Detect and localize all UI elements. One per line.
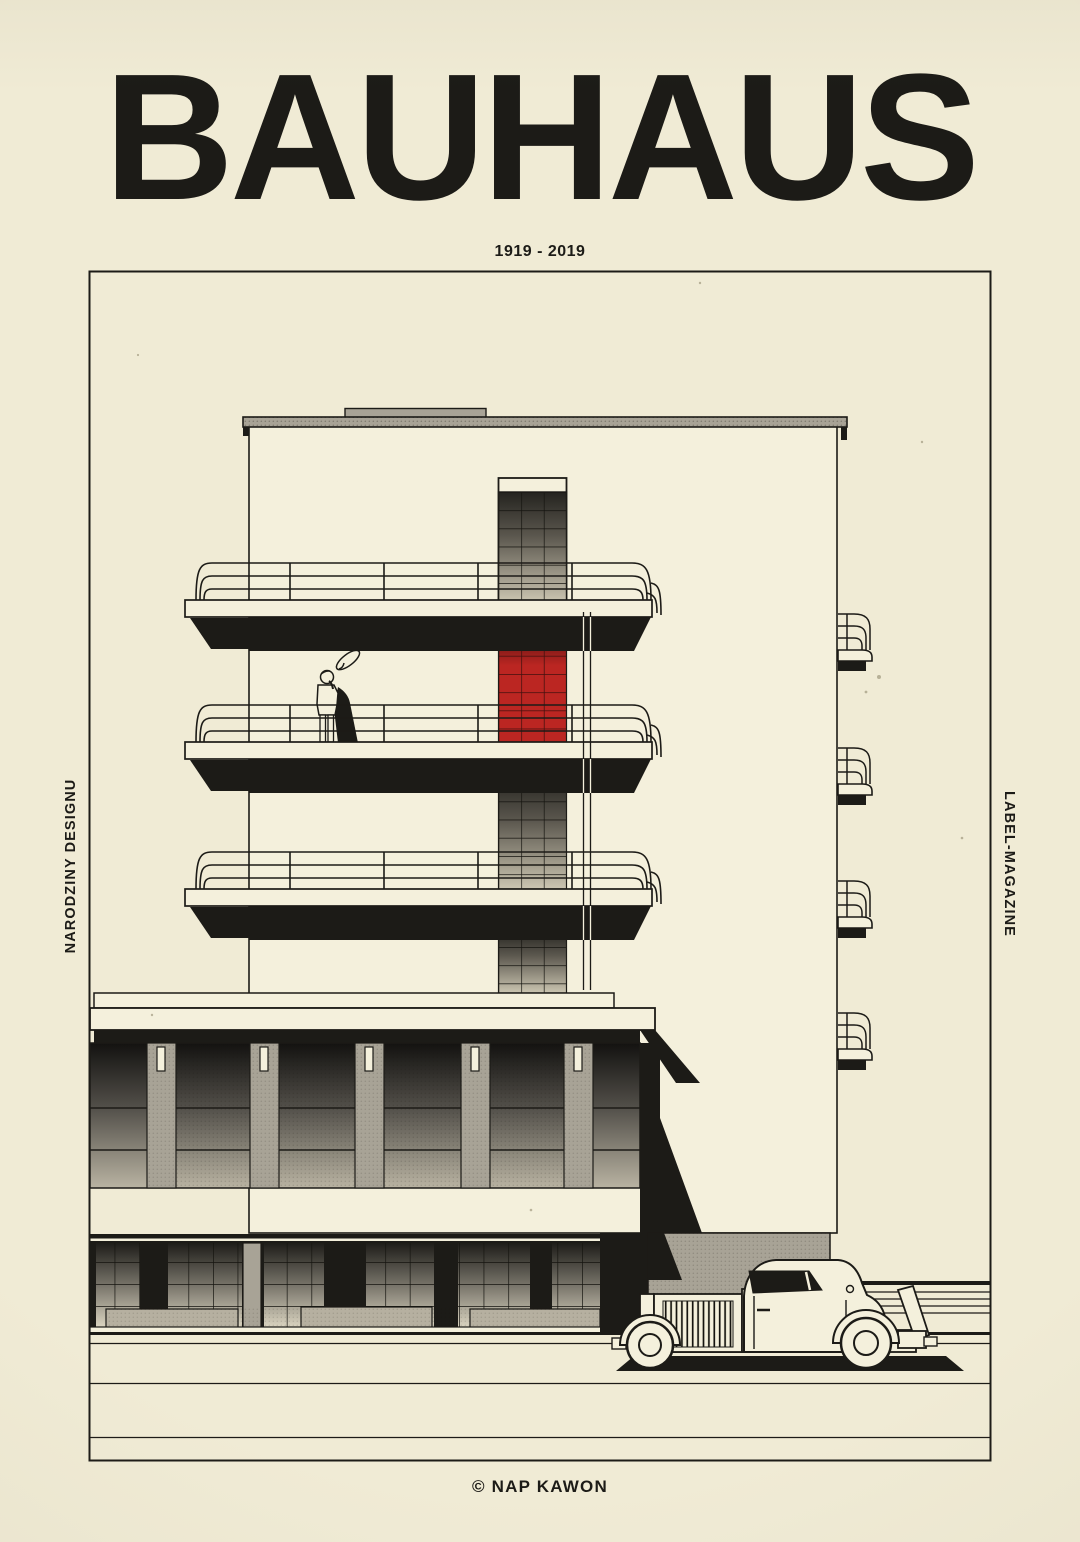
side-balconies xyxy=(838,614,872,1070)
balcony-left-3 xyxy=(185,852,661,940)
credit-line: © NAP KAWON xyxy=(0,1477,1080,1497)
balcony-left-1 xyxy=(185,563,661,651)
building-illustration xyxy=(0,0,1080,1542)
bauhaus-poster: BAUHAUS 1919 - 2019 xyxy=(0,0,1080,1542)
left-margin-label: NARODZINY DESIGNU xyxy=(63,779,79,954)
curb-blocks xyxy=(106,1307,600,1328)
right-margin-label: LABEL-MAGAZINE xyxy=(1001,791,1017,937)
balcony-left-2 xyxy=(185,705,661,793)
storefront xyxy=(90,1234,648,1333)
